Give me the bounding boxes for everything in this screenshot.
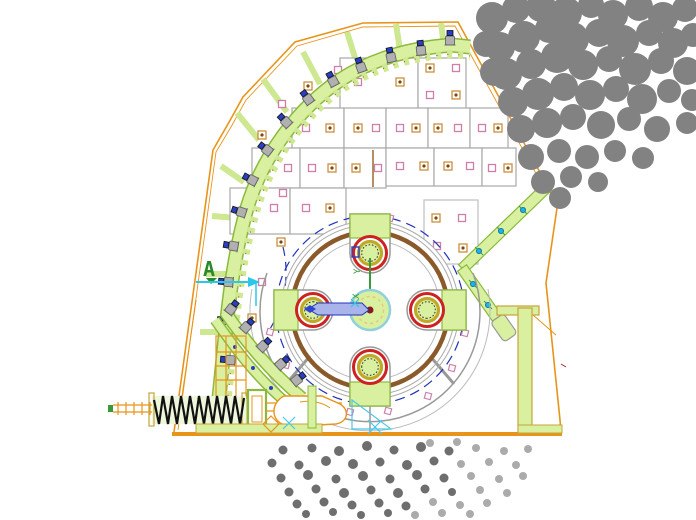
section-marker-label: A: [203, 257, 215, 281]
rod-end: [108, 405, 113, 412]
axis-y-label: Y: [353, 268, 363, 274]
hammer-bottom: [350, 347, 390, 406]
tension-rod: [113, 402, 158, 415]
axis-x-label: X: [352, 293, 362, 299]
discharge-particles: [268, 438, 533, 519]
hammer-right: [407, 290, 466, 330]
cad-drawing-canvas: Y X: [0, 0, 696, 520]
